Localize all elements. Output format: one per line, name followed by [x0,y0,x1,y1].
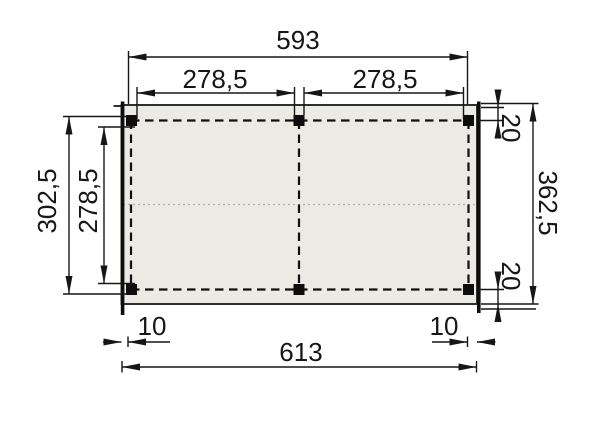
post-top-center [294,115,305,126]
dim-label-left-outer: 302,5 [34,168,60,233]
dim-label-top-span-left: 278,5 [182,66,247,92]
dim-label-right-top: 20 [498,114,524,143]
dim-label-right-bottom: 20 [498,262,524,291]
dim-label-bottom-offset-right: 10 [430,313,459,339]
post-bottom-left [126,284,137,295]
dim-label-top-total: 593 [276,27,319,53]
technical-drawing: 593 278,5 278,5 302,5 278,5 362,5 20 20 … [0,0,600,431]
roof-panel [114,105,478,304]
post-top-right [463,115,474,126]
post-bottom-center [294,284,305,295]
dim-label-top-span-right: 278,5 [352,66,417,92]
post-top-left [126,115,137,126]
dim-label-left-inner: 278,5 [75,168,101,233]
dim-label-right-total: 362,5 [535,170,561,235]
post-bottom-right [463,284,474,295]
dim-label-bottom-total: 613 [279,339,322,365]
dim-label-bottom-offset-left: 10 [138,313,167,339]
